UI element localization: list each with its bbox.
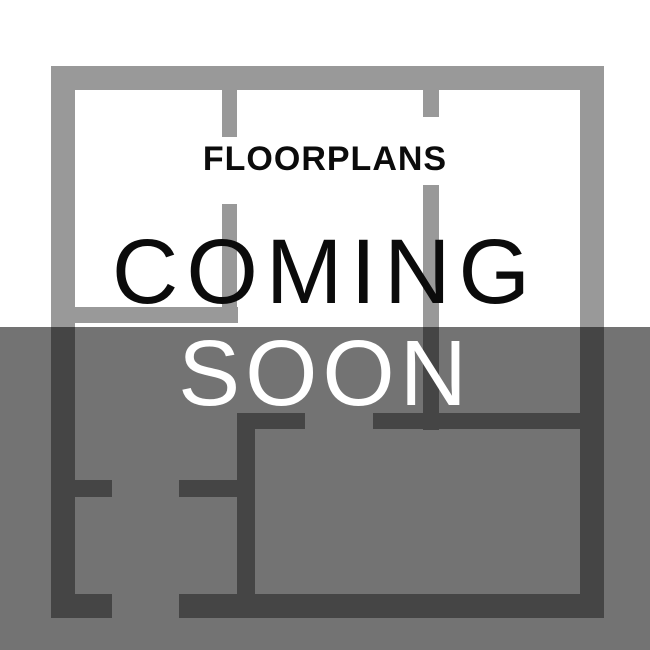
partition-b-upper: [423, 90, 439, 117]
partition-a-lower: [222, 204, 237, 323]
dark-overlay: [0, 327, 650, 650]
coming-soon-placeholder: FLOORPLANS COMING SOON: [0, 0, 650, 650]
upper-left-room-bottom-wall: [75, 307, 238, 323]
outer-top-wall: [51, 66, 604, 90]
partition-a-upper: [222, 90, 237, 137]
